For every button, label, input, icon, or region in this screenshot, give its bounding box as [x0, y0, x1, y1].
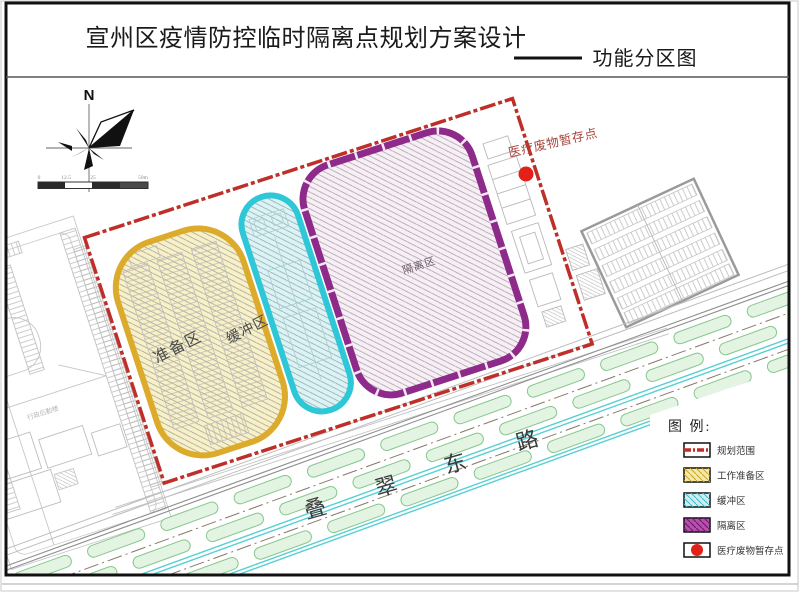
plan-map-canvas: 准备区 缓冲区 隔离区 医疗废物暂存点 叠 翠 东 路 行政后勤楼 图 例: 规…	[0, 0, 800, 593]
svg-text:隔离区: 隔离区	[717, 520, 746, 532]
svg-text:0: 0	[38, 175, 41, 181]
north-label: N	[84, 87, 95, 104]
svg-text:12.5: 12.5	[61, 175, 71, 181]
svg-text:50m: 50m	[138, 175, 149, 181]
medical-waste-dot	[519, 167, 534, 182]
page-title: 宣州区疫情防控临时隔离点规划方案设计	[86, 25, 527, 52]
svg-text:医疗废物暂存点: 医疗废物暂存点	[717, 545, 784, 557]
svg-text:规划范围: 规划范围	[717, 445, 755, 457]
plan-sheet: 准备区 缓冲区 隔离区 医疗废物暂存点 叠 翠 东 路 行政后勤楼 图 例: 规…	[0, 0, 800, 593]
map-subtitle: 功能分区图	[593, 47, 698, 70]
svg-text:缓冲区: 缓冲区	[717, 495, 746, 507]
svg-text:工作准备区: 工作准备区	[717, 470, 765, 482]
svg-text:25: 25	[90, 175, 96, 181]
legend-header: 图 例:	[668, 419, 711, 435]
